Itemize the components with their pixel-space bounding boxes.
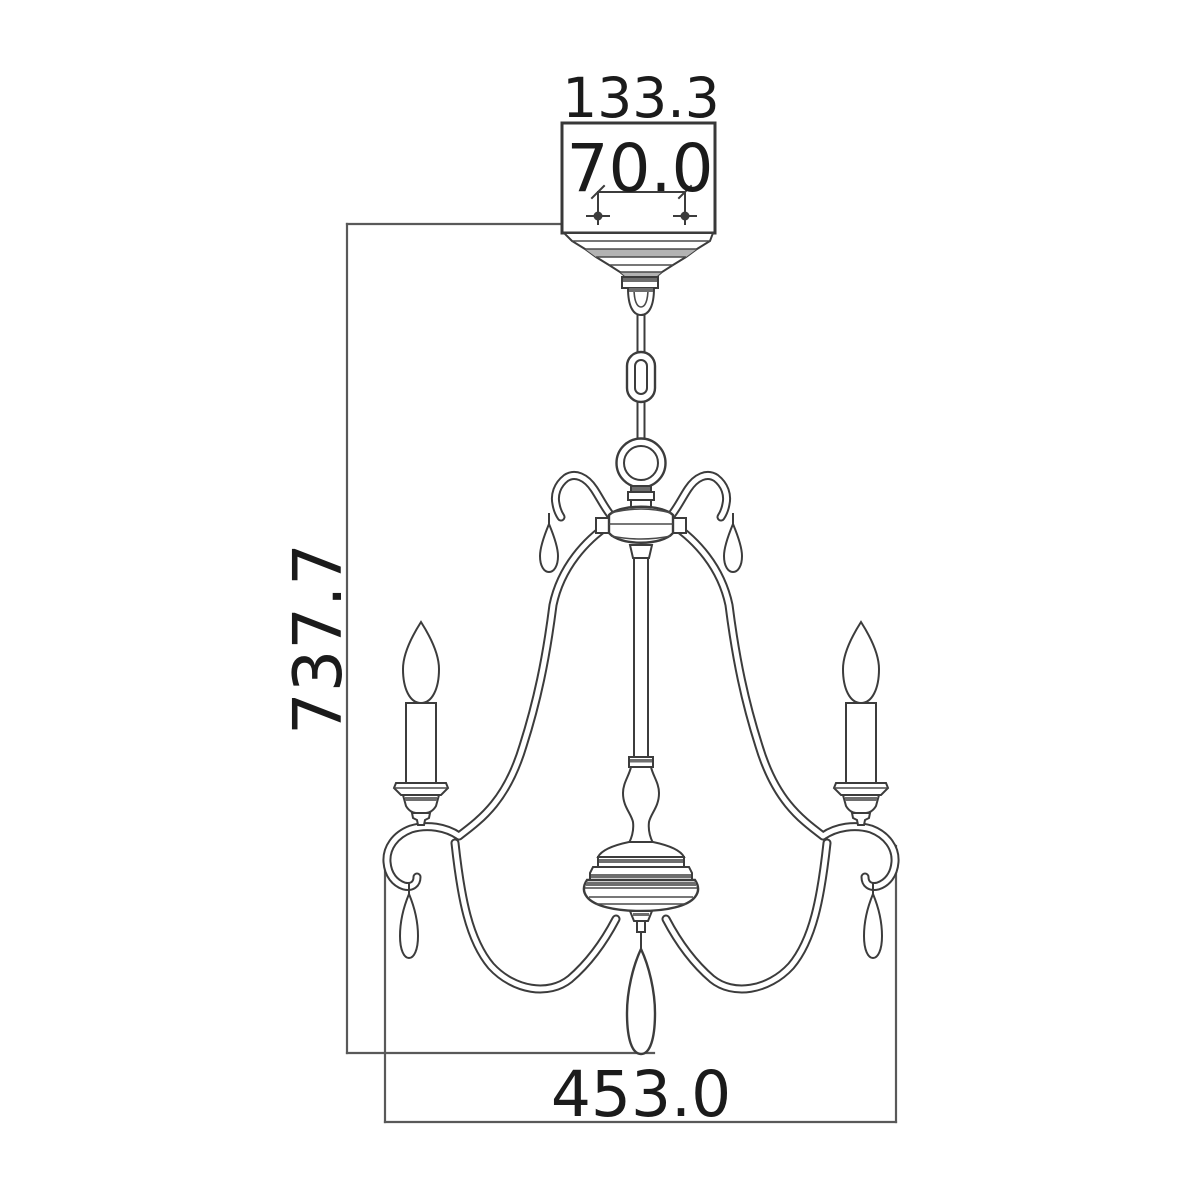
bell-band-1-fill — [599, 859, 683, 863]
right-candle-bulb — [843, 622, 879, 703]
left-candle-sleeve — [406, 703, 436, 783]
left-candle-cup-band — [405, 797, 437, 801]
right-candle-bobeche — [834, 783, 888, 795]
overall-width-dimension-label: 453.0 — [551, 1058, 731, 1131]
right-candle-sleeve — [846, 703, 876, 783]
ring-neck-flange — [628, 492, 654, 500]
suspension-chain — [627, 288, 655, 440]
drawing-canvas: 133.3 70.0 737.7 453.0 — [0, 0, 1200, 1200]
center-crystal — [627, 949, 655, 1054]
left-candle-bulb — [403, 622, 439, 703]
right-hook-crystal — [724, 524, 742, 572]
central-column — [584, 545, 698, 1054]
left-candle-bobeche — [394, 783, 448, 795]
chain-hanger-band — [629, 288, 653, 292]
vase-element — [623, 767, 659, 843]
bottom-finial-band — [633, 913, 649, 916]
stem-taper — [630, 545, 652, 558]
overall-height-dimension-label: 737.7 — [279, 543, 357, 735]
left-candle — [394, 622, 448, 825]
right-candle-cup-band — [845, 797, 877, 801]
chain-hanger-cup — [628, 288, 654, 315]
bell-band-2 — [590, 867, 692, 880]
chain-wire-lower — [638, 402, 645, 440]
center-stem — [634, 558, 648, 757]
right-candle — [834, 622, 888, 825]
mounting-hole-spacing-dimension-label: 70.0 — [567, 130, 714, 207]
ring-neck-band — [632, 487, 650, 491]
canopy-collar-band — [623, 278, 657, 282]
canopy-dome-band-1 — [585, 249, 697, 257]
suspension-ring-inner — [624, 446, 658, 480]
left-hook-crystal — [540, 524, 558, 572]
right-arm-crystal — [864, 894, 882, 958]
bell-band-2-fill — [591, 874, 691, 878]
chandelier-dimension-drawing: 133.3 70.0 737.7 453.0 — [0, 0, 1200, 1200]
bottom-finial-stub — [637, 921, 645, 932]
bell-shoulder — [598, 842, 684, 857]
body-top-assembly — [596, 439, 686, 543]
bell-base-fill — [586, 882, 696, 886]
stem-collar-band — [630, 759, 652, 763]
left-arm-crystal — [400, 894, 418, 958]
canopy-width-dimension-label: 133.3 — [562, 66, 719, 130]
